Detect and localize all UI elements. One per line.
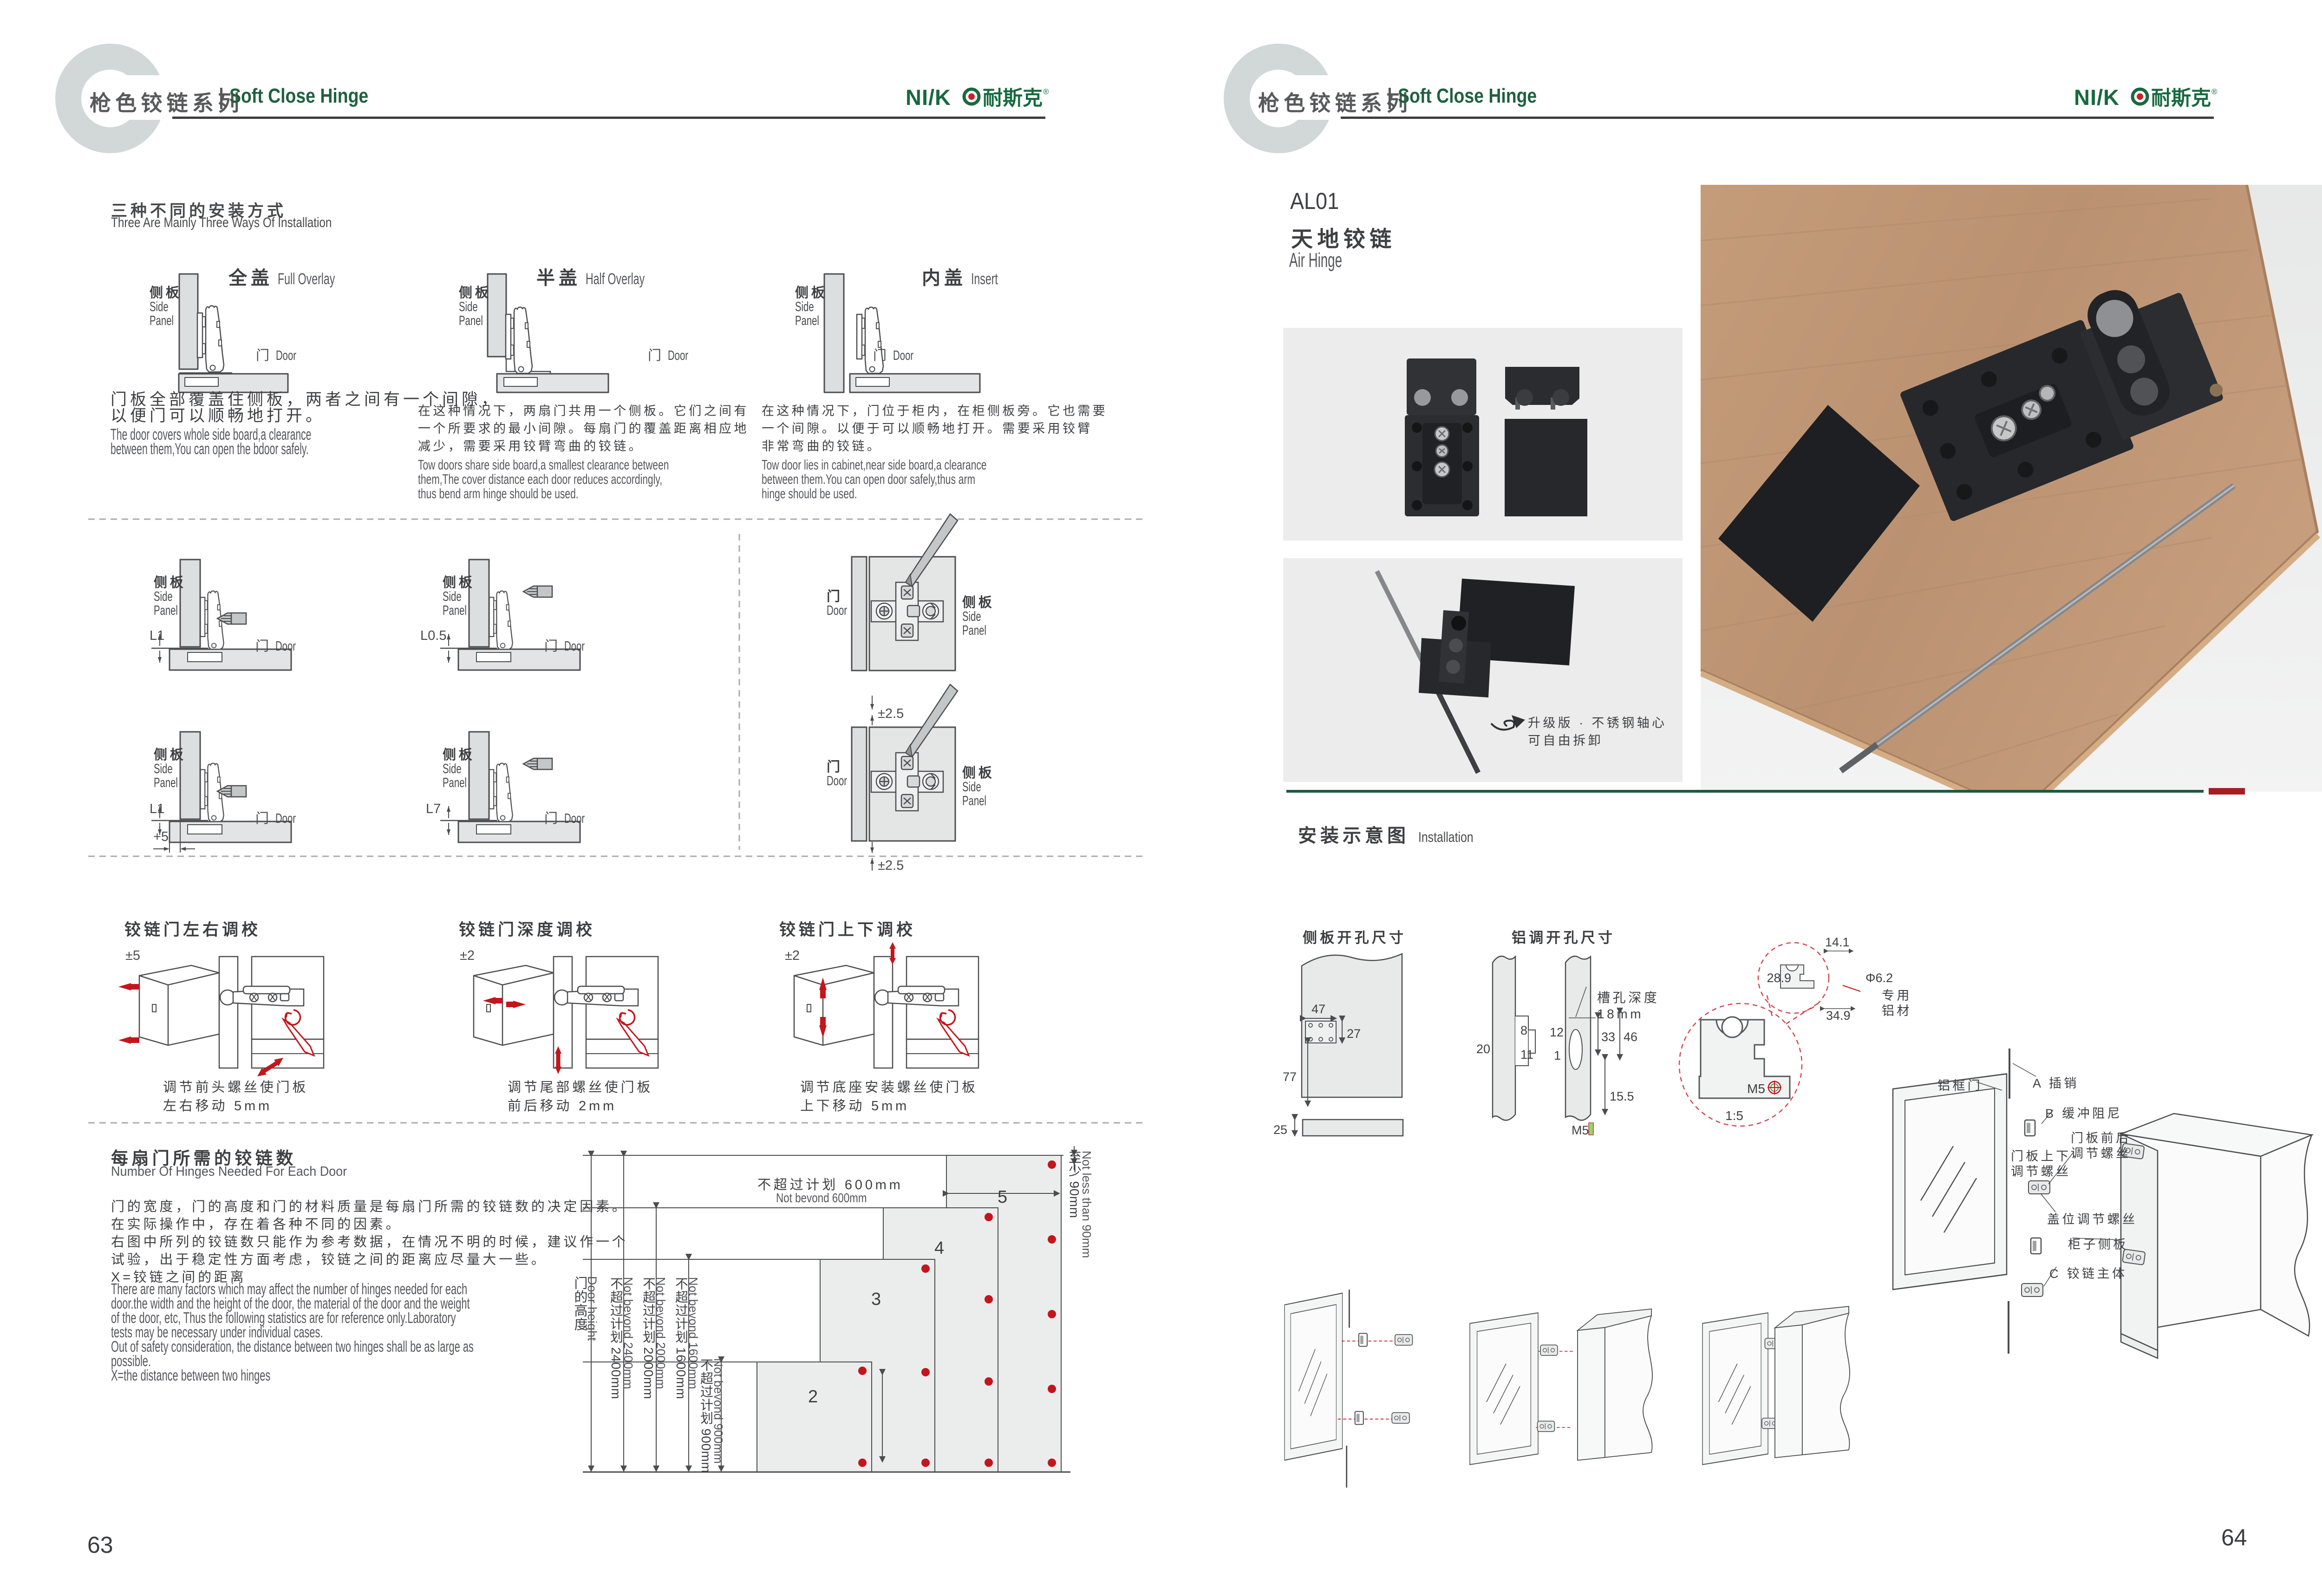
svg-text:15.5: 15.5 [1610,1089,1634,1103]
svg-text:Φ6.2: Φ6.2 [1865,971,1893,985]
svg-text:20: 20 [1476,1042,1490,1056]
svg-text:8: 8 [1520,1023,1527,1037]
svg-text:47: 47 [1311,1002,1325,1016]
svg-text:14.1: 14.1 [1825,935,1850,949]
svg-text:11: 11 [1520,1048,1533,1062]
svg-text:25: 25 [1273,1123,1287,1137]
svg-text:77: 77 [1283,1070,1297,1084]
svg-text:34.9: 34.9 [1826,1009,1851,1023]
svg-text:M5: M5 [1572,1123,1589,1137]
svg-text:1:5: 1:5 [1725,1108,1743,1123]
svg-text:1: 1 [1554,1049,1561,1062]
svg-text:27: 27 [1347,1027,1361,1041]
svg-text:18mm: 18mm [1597,1007,1644,1021]
svg-text:12: 12 [1550,1025,1564,1039]
svg-text:M5: M5 [1747,1081,1765,1096]
svg-text:46: 46 [1624,1030,1637,1044]
svg-text:槽孔深度: 槽孔深度 [1597,990,1659,1005]
svg-text:33: 33 [1601,1030,1615,1044]
svg-text:28.9: 28.9 [1767,971,1791,985]
